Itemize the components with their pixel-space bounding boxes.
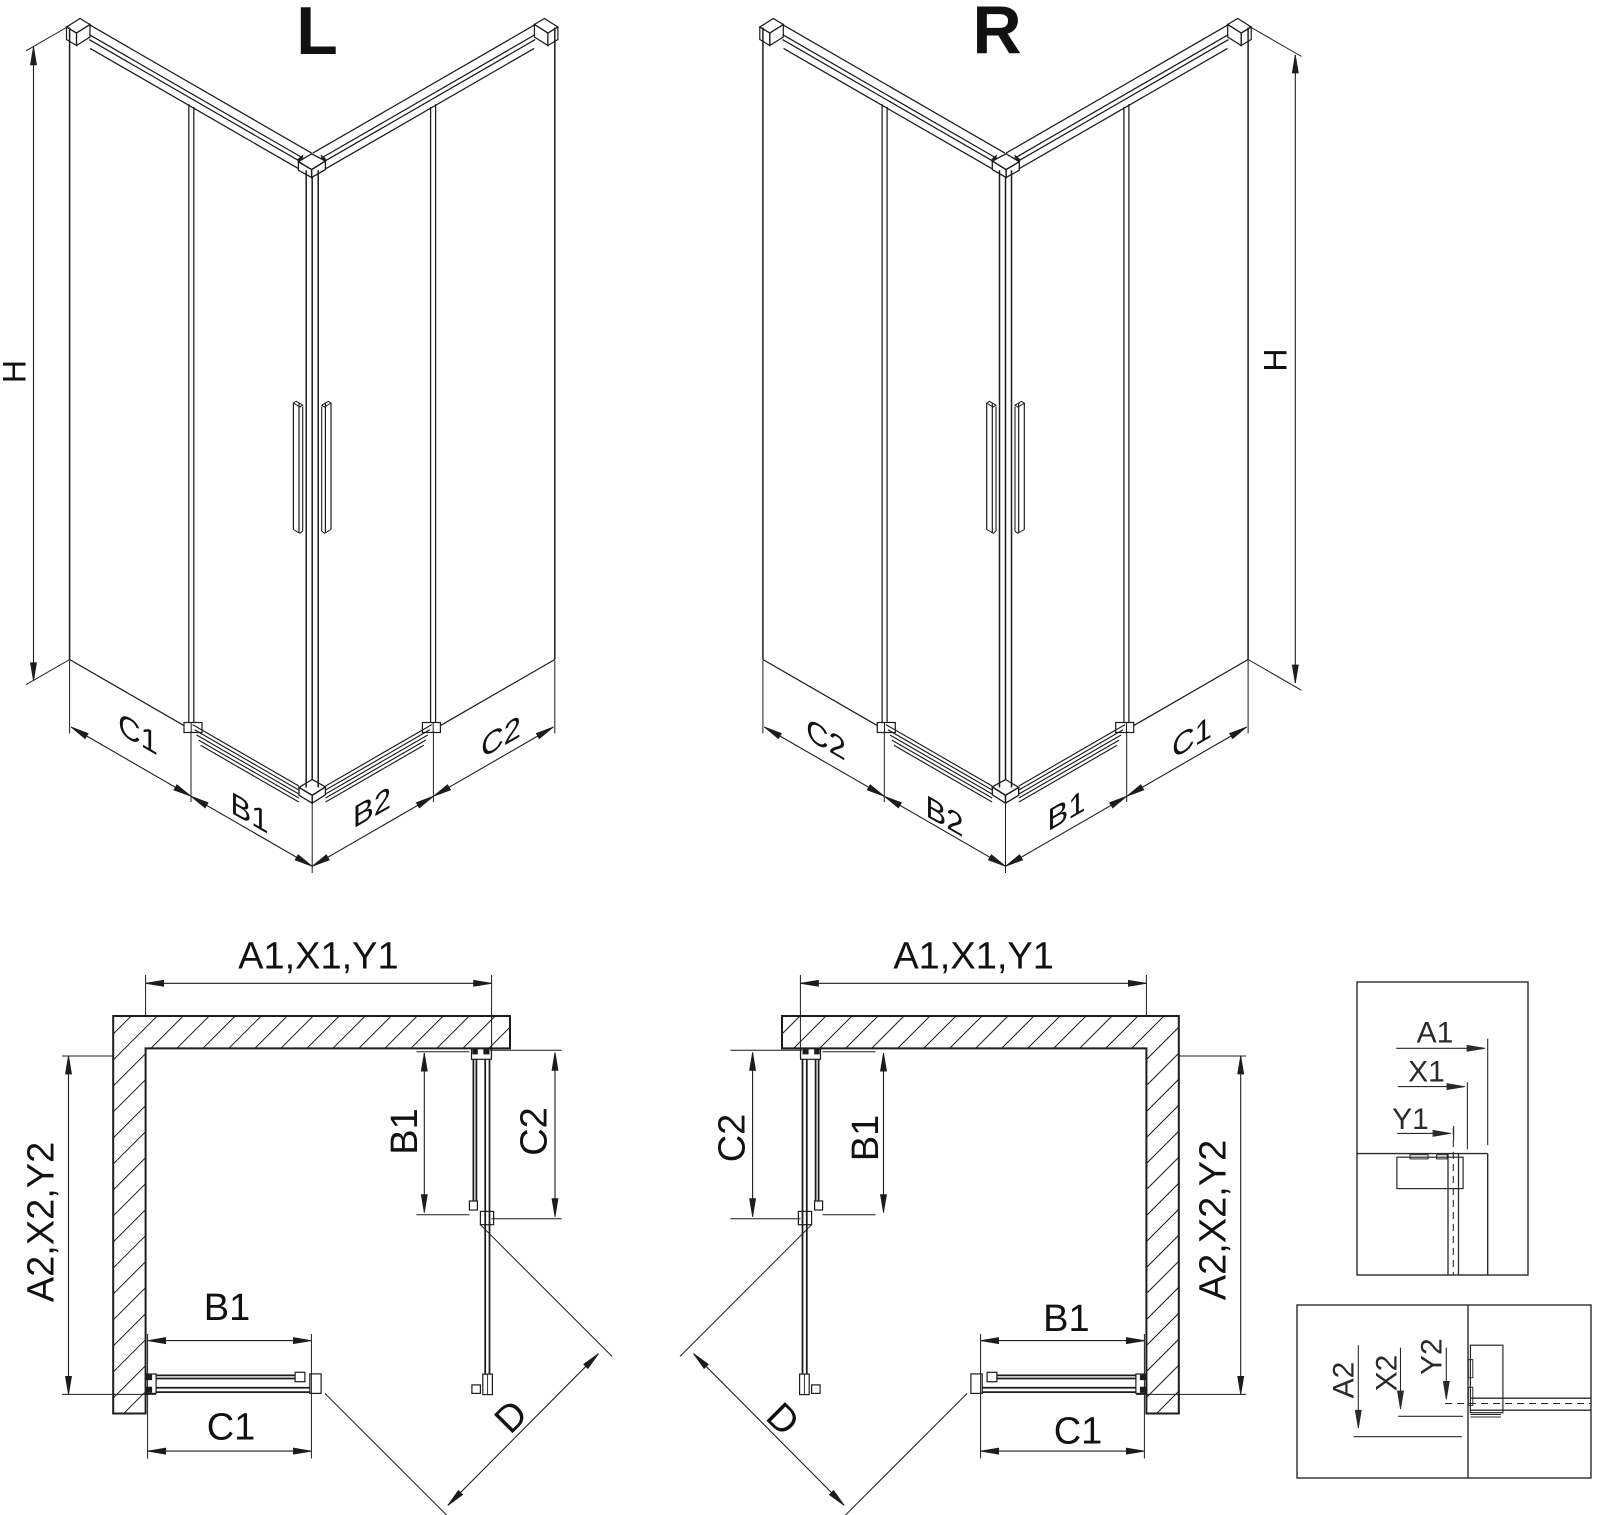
svg-text:L: L <box>296 0 338 69</box>
svg-text:Y2: Y2 <box>1416 1338 1449 1375</box>
svg-text:B1: B1 <box>204 1287 250 1329</box>
svg-text:C1: C1 <box>1054 1411 1103 1453</box>
svg-text:B1: B1 <box>845 1115 887 1161</box>
svg-text:C2: C2 <box>513 1107 555 1156</box>
svg-text:H: H <box>1258 348 1294 371</box>
svg-text:R: R <box>972 0 1021 68</box>
svg-text:Y1: Y1 <box>1392 1103 1429 1136</box>
svg-text:A1: A1 <box>1417 1016 1454 1049</box>
svg-text:A2,X2,Y2: A2,X2,Y2 <box>20 1142 62 1303</box>
svg-text:A1,X1,Y1: A1,X1,Y1 <box>893 935 1054 977</box>
svg-text:C1: C1 <box>207 1406 256 1448</box>
svg-text:X1: X1 <box>1408 1056 1445 1089</box>
svg-text:B1: B1 <box>384 1108 426 1154</box>
svg-text:C2: C2 <box>711 1114 753 1163</box>
svg-text:B1: B1 <box>1043 1298 1089 1340</box>
svg-text:X2: X2 <box>1371 1355 1404 1392</box>
svg-text:H: H <box>0 360 33 383</box>
svg-text:A2: A2 <box>1328 1362 1361 1399</box>
svg-text:A2,X2,Y2: A2,X2,Y2 <box>1192 1140 1234 1301</box>
svg-text:A1,X1,Y1: A1,X1,Y1 <box>238 935 399 977</box>
